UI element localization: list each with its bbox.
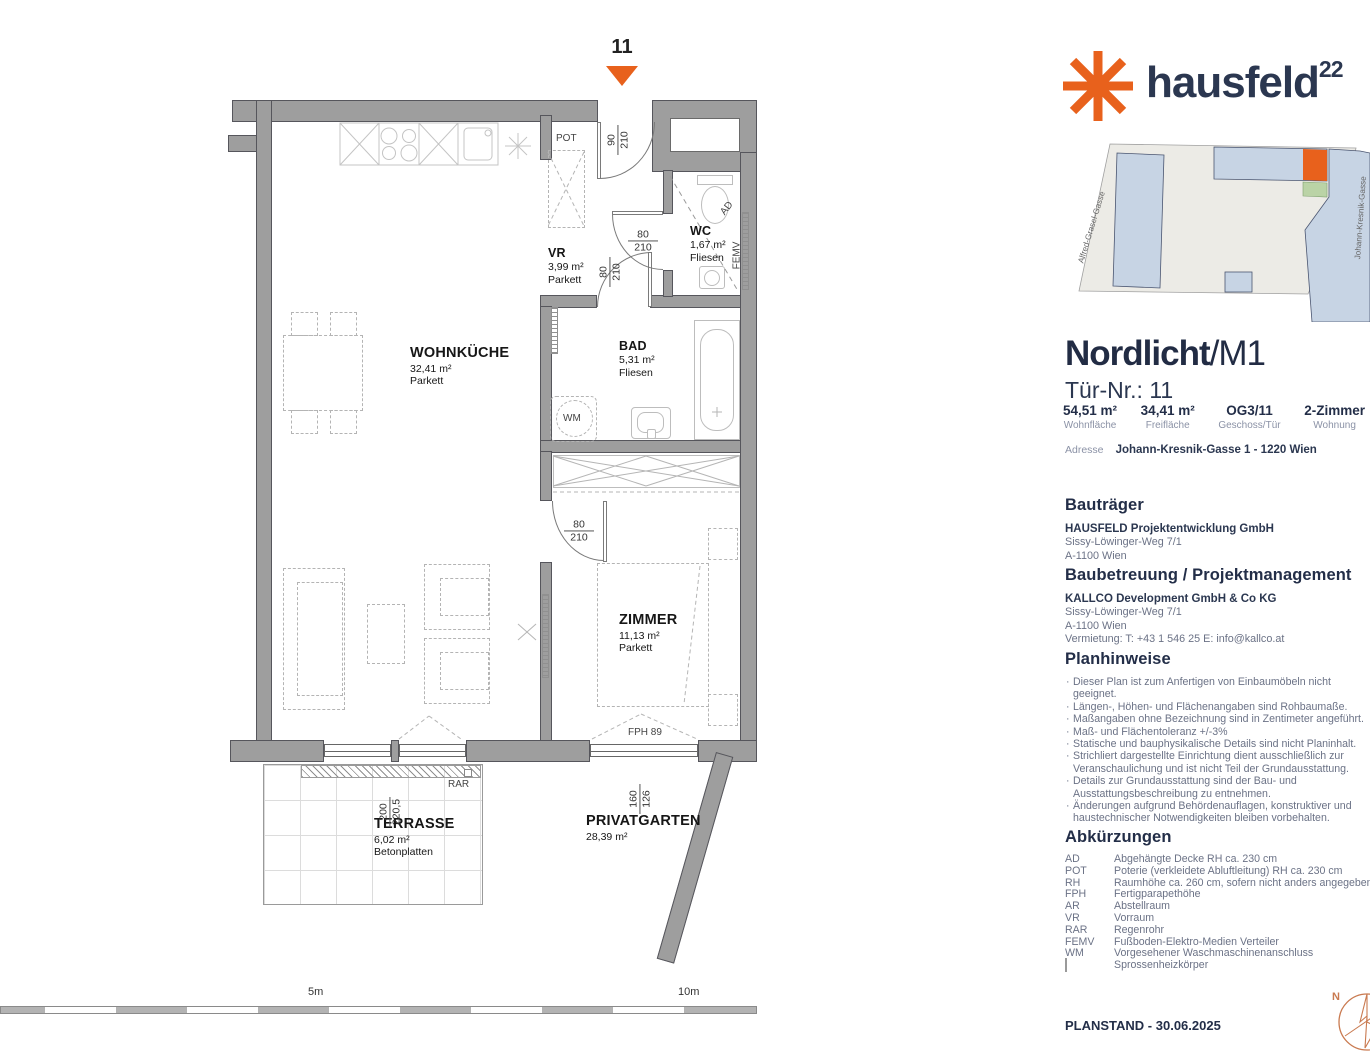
north-compass-icon: N (1331, 986, 1370, 1058)
address-value: Johann-Kresnik-Gasse 1 - 1220 Wien (1116, 444, 1317, 456)
management-section: Baubetreuung / Projektmanagement KALLCO … (1065, 566, 1367, 647)
abbreviations-section: Abkürzungen ADAbgehängte Decke RH ca. 23… (1065, 828, 1370, 972)
site-plan: Alfred-Grasel-Gasse Johann-Kresnik-Gasse (1072, 140, 1370, 322)
note-item: Details zur Grundausstattung sind der Ba… (1065, 775, 1367, 800)
developer-section: Bauträger HAUSFELD Projektentwicklung Gm… (1065, 496, 1367, 563)
dim-bad-door: 80 210 (628, 228, 658, 253)
scale-5m-label: 5m (308, 986, 323, 998)
abbreviations-heading: Abkürzungen (1065, 828, 1370, 847)
abbrev-row: FPHFertigparapethöhe (1065, 889, 1370, 901)
rar-label: RAR (448, 779, 469, 790)
dim-terrace-door: 200 220,5 (377, 797, 402, 827)
abbrev-row-heater: Sprossenheizkörper (1065, 960, 1370, 972)
dim-wc-door: 80 210 (597, 257, 622, 287)
room-label-wohnkueche: WOHNKÜCHE 32,41 m² Parkett (410, 345, 509, 388)
brand-sup: 22 (1319, 56, 1343, 82)
address-label: Adresse (1065, 444, 1104, 456)
dim-entrance-door: 90 210 (605, 125, 630, 155)
abbrev-row: RHRaumhöhe ca. 260 cm, sofern nicht ande… (1065, 878, 1370, 890)
stat-geschoss: OG3/11 Geschoss/Tür (1218, 403, 1280, 431)
compass-n-label: N (1332, 991, 1340, 1003)
scale-10m-label: 10m (678, 986, 699, 998)
abbrev-row: POTPoterie (verkleidete Abluftleitung) R… (1065, 866, 1370, 878)
project-title: Nordlicht/M1 (1065, 334, 1265, 374)
note-item: Änderungen aufgrund Behördenauflagen, ko… (1065, 800, 1367, 825)
developer-heading: Bauträger (1065, 496, 1367, 515)
note-item: Dieser Plan ist zum Anfertigen von Einba… (1065, 676, 1367, 701)
room-label-wc: WC 1,67 m² Fliesen (690, 224, 726, 265)
room-label-vr: VR 3,99 m² Parkett (548, 246, 584, 287)
room-label-bad: BAD 5,31 m² Fliesen (619, 339, 655, 380)
room-label-privatgarten: PRIVATGARTEN 28,39 m² (586, 813, 701, 843)
management-heading: Baubetreuung / Projektmanagement (1065, 566, 1367, 585)
door-number: Tür-Nr.: 11 (1065, 377, 1265, 404)
fph-label: FPH 89 (628, 727, 662, 738)
floorplan-page: 11 (0, 0, 1370, 1060)
title-block: Nordlicht/M1 Tür-Nr.: 11 (1065, 334, 1265, 404)
scale-bar (0, 1006, 757, 1014)
abbrev-row: WMVorgesehener Waschmaschinenanschluss (1065, 948, 1370, 960)
abbrev-row: RARRegenrohr (1065, 925, 1370, 937)
note-item: Maßangaben ohne Bezeichnung sind in Zent… (1065, 713, 1367, 725)
note-item: Längen-, Höhen- und Flächenangaben sind … (1065, 701, 1367, 713)
abbrev-row: VRVorraum (1065, 913, 1370, 925)
unit-stats: 54,51 m² Wohnfläche 34,41 m² Freifläche … (1063, 403, 1365, 431)
notes-heading: Planhinweise (1065, 650, 1367, 669)
note-item: Strichliert dargestellte Einrichtung die… (1065, 750, 1367, 775)
plan-notes-section: Planhinweise Dieser Plan ist zum Anferti… (1065, 650, 1367, 825)
sprossenheizkoerper-swatch-icon (1065, 958, 1067, 972)
stat-freiflaeche: 34,41 m² Freifläche (1141, 403, 1195, 431)
pot-label: POT (556, 133, 577, 144)
room-label-zimmer: ZIMMER 11,13 m² Parkett (619, 612, 677, 655)
unit-location-highlight (1303, 149, 1327, 181)
abbrev-row: ARAbstellraum (1065, 901, 1370, 913)
dim-zimmer-window: 160 126 (627, 784, 652, 814)
terrace-edge-hatch (301, 765, 481, 778)
rainpipe-symbol (464, 769, 472, 777)
hausfeld-logo-icon (1062, 50, 1134, 122)
femv-label: FEMV (732, 233, 743, 279)
planstand-date: PLANSTAND - 30.06.2025 (1065, 1018, 1221, 1033)
note-item: Statische und bauphysikalische Details s… (1065, 738, 1367, 750)
stat-wohnflaeche: 54,51 m² Wohnfläche (1063, 403, 1117, 431)
brand-wordmark: hausfeld22 (1146, 58, 1343, 108)
address-row: Adresse Johann-Kresnik-Gasse 1 - 1220 Wi… (1065, 444, 1317, 456)
note-item: Maß- und Flächentoleranz +/-3% (1065, 726, 1367, 738)
stat-zimmer: 2-Zimmer Wohnung (1304, 403, 1365, 431)
dim-zimmer-door: 80 210 (564, 518, 594, 543)
